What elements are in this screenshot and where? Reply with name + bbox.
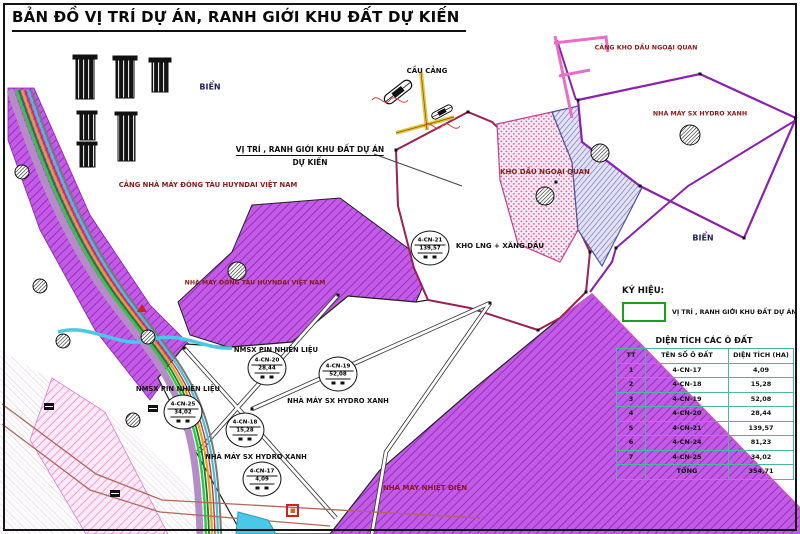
plot-stamp-4-CN-21: 4-CN-21 139,57 [411,231,450,266]
plot-cells [424,254,437,259]
table-header-row: TT TÊN SỐ Ô ĐẤT DIỆN TÍCH (HA) [617,349,794,364]
plot-code: 4-CN-19 [323,364,353,372]
ship-icon [382,78,413,106]
plot-code: 4-CN-20 [252,358,282,366]
table-row: 5 4-CN-21 139,57 [617,421,794,436]
cell-ten: 4-CN-19 [646,392,729,407]
cell-tt: 6 [617,436,646,451]
plot-area: 28,44 [254,366,279,374]
table-row: 4 4-CN-20 28,44 [617,407,794,422]
total-label: TỔNG [646,465,729,480]
table-row: 7 4-CN-25 34,02 [617,450,794,465]
plot-code: 4-CN-21 [415,238,445,246]
label-cang-huyndai: CẢNG NHÀ MÁY ĐÓNG TÀU HUYNDAI VIỆT NAM [119,181,297,189]
table-total-row: TỔNG 354,71 [617,465,794,480]
col-dientich: DIỆN TÍCH (HA) [729,349,794,364]
legend-heading: KÝ HIỆU: [622,286,792,296]
label-bien-west: BIỂN [199,83,220,92]
cell-ten: 4-CN-24 [646,436,729,451]
cell-tt: 3 [617,392,646,407]
plot-stamp-4-CN-17: 4-CN-17 4,09 [243,462,282,497]
legend-item-label: VỊ TRÍ , RANH GIỚI KHU ĐẤT DỰ ÁN [672,309,797,316]
cell-ten: 4-CN-25 [646,450,729,465]
col-ten: TÊN SỐ Ô ĐẤT [646,349,729,364]
legend-and-table-panel: KÝ HIỆU: VỊ TRÍ , RANH GIỚI KHU ĐẤT DỰ Á… [616,286,792,480]
cell-area: 52,08 [729,392,794,407]
cell-area: 4,09 [729,363,794,378]
cell-area: 139,57 [729,421,794,436]
cell-area: 28,44 [729,407,794,422]
cell-area: 81,23 [729,436,794,451]
plot-area: 52,08 [325,372,350,380]
col-tt: TT [617,349,646,364]
plot-area: 4,09 [249,477,274,485]
plot-stamp-4-CN-20: 4-CN-20 28,44 [248,351,287,386]
label-cau-cang: CẦU CẢNG [407,67,448,75]
cell-area: 15,28 [729,378,794,393]
table-row: 3 4-CN-19 52,08 [617,392,794,407]
plot-code: 4-CN-25 [168,402,198,410]
boundary-legend-swatch [622,302,666,322]
plot-stamp-4-CN-18: 4-CN-18 15,28 [226,413,265,448]
cell-tt: 7 [617,450,646,465]
plot-stamp-4-CN-19: 4-CN-19 52,08 [319,357,358,392]
label-cang-kho-dau: CẢNG KHO DẦU NGOẠI QUAN [595,45,698,52]
planning-map-page: BẢN ĐỒ VỊ TRÍ DỰ ÁN, RANH GIỚI KHU ĐẤT D… [0,0,800,534]
label-kho-dau-ngoai-quan: KHO DẦU NGOẠI QUAN [500,168,590,176]
label-hydro-xanh-ne: NHÀ MÁY SX HYDRO XANH [653,111,747,118]
label-kho-lng: KHO LNG + XĂNG DẦU [456,242,544,250]
plot-area: 34,02 [170,410,195,418]
project-boundary-callout: VỊ TRÍ , RANH GIỚI KHU ĐẤT DỰ ÁN DỰ KIẾN [236,145,384,167]
plot-code: 4-CN-18 [230,420,260,428]
page-title: BẢN ĐỒ VỊ TRÍ DỰ ÁN, RANH GIỚI KHU ĐẤT D… [12,8,466,32]
cell-area: 34,02 [729,450,794,465]
plot-code: 4-CN-17 [247,469,277,477]
plot-cells [256,485,269,490]
cell-ten: 4-CN-18 [646,378,729,393]
total-value: 354,71 [729,465,794,480]
cell-tt: 5 [617,421,646,436]
cell-tt: 2 [617,378,646,393]
plot-area: 15,28 [232,428,257,436]
callout-line2: DỰ KIẾN [236,158,384,167]
callout-line1: VỊ TRÍ , RANH GIỚI KHU ĐẤT DỰ ÁN [236,145,384,156]
dry-dock-symbols [73,55,171,167]
plot-cells [332,380,345,385]
label-hydro-xanh-south: NHÀ MÁY SX HYDRO XANH [205,453,307,461]
plot-cells [239,436,252,441]
label-nmsx-pin-left: NMSX PIN NHIÊN LIỆU [136,385,220,393]
cell-tt-empty [617,465,646,480]
cell-tt: 4 [617,407,646,422]
cell-ten: 4-CN-21 [646,421,729,436]
area-table: TT TÊN SỐ Ô ĐẤT DIỆN TÍCH (HA) 1 4-CN-17… [616,348,794,480]
label-nha-may-huyndai: NHÀ MÁY ĐÓNG TÀU HUYNDAI VIỆT NAM [185,280,326,287]
table-row: 6 4-CN-24 81,23 [617,436,794,451]
label-nhiet-dien: NHÀ MÁY NHIỆT ĐIỆN [383,484,467,492]
plot-stamp-4-CN-25: 4-CN-25 34,02 [164,395,203,430]
cell-tt: 1 [617,363,646,378]
cell-ten: 4-CN-20 [646,407,729,422]
table-row: 1 4-CN-17 4,09 [617,363,794,378]
label-hydro-xanh-mid: NHÀ MÁY SX HYDRO XANH [287,397,389,405]
plot-cells [261,374,274,379]
legend-item: VỊ TRÍ , RANH GIỚI KHU ĐẤT DỰ ÁN [622,302,792,322]
plot-cells [177,418,190,423]
area-table-title: DIỆN TÍCH CÁC Ô ĐẤT [616,336,792,345]
cell-ten: 4-CN-17 [646,363,729,378]
label-nmsx-pin-top: NMSX PIN NHIÊN LIỆU [234,346,318,354]
table-row: 2 4-CN-18 15,28 [617,378,794,393]
plot-area: 139,57 [417,246,442,254]
label-bien-east: BIỂN [692,234,713,243]
